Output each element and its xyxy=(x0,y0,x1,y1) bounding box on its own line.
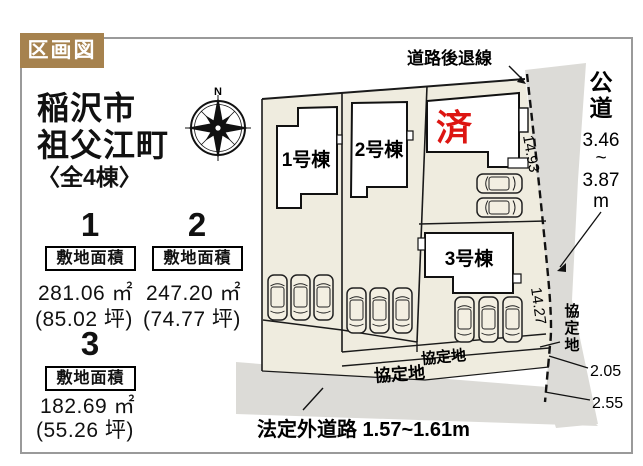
setback-line-label: 道路後退線 xyxy=(407,48,492,68)
car-icon xyxy=(370,288,389,333)
building-sold-wing xyxy=(519,108,528,132)
building-3-wing xyxy=(418,238,425,250)
public-road-width-max: 3.87 xyxy=(583,170,620,191)
compass-north-label: N xyxy=(214,86,222,98)
car-icon xyxy=(347,288,366,333)
agreement-land-label-large: 協定地 xyxy=(373,362,425,386)
compass-rose-icon xyxy=(184,94,252,162)
car-icon xyxy=(314,275,333,320)
dimension-strip-lower: 2.55 xyxy=(592,395,623,412)
car-icon xyxy=(393,288,412,333)
sold-badge: 済 xyxy=(436,107,472,148)
building-3-label: 3号棟 xyxy=(445,247,495,270)
plot-map-diagram: 1号棟 2号棟 済 3号棟 N 道路後退線 公 道 3.46 ~ 3.87 m xyxy=(0,0,643,466)
agreement-land-vertical-char3: 地 xyxy=(564,336,579,354)
building-1-label: 1号棟 xyxy=(282,148,332,171)
car-icon xyxy=(268,275,287,320)
car-icon xyxy=(503,297,522,342)
public-road-label-1: 公 xyxy=(590,69,613,95)
bottom-road-label: 法定外道路 1.57~1.61m xyxy=(257,417,470,441)
building-1-porch xyxy=(337,135,342,144)
agreement-land-vertical-char2: 定 xyxy=(564,319,579,337)
car-icon xyxy=(479,297,498,342)
dimension-strip-upper: 2.05 xyxy=(590,363,621,380)
building-3-porch xyxy=(513,274,521,283)
car-icon xyxy=(477,174,522,193)
public-road-label-2: 道 xyxy=(590,95,613,121)
public-road-unit: m xyxy=(593,191,609,212)
car-icon xyxy=(455,297,474,342)
building-2-porch xyxy=(407,131,413,140)
public-road-tilde: ~ xyxy=(595,148,606,169)
building-2-label: 2号棟 xyxy=(355,138,405,161)
agreement-land-vertical-char1: 協 xyxy=(564,302,579,320)
car-icon xyxy=(291,275,310,320)
car-icon xyxy=(477,198,522,217)
